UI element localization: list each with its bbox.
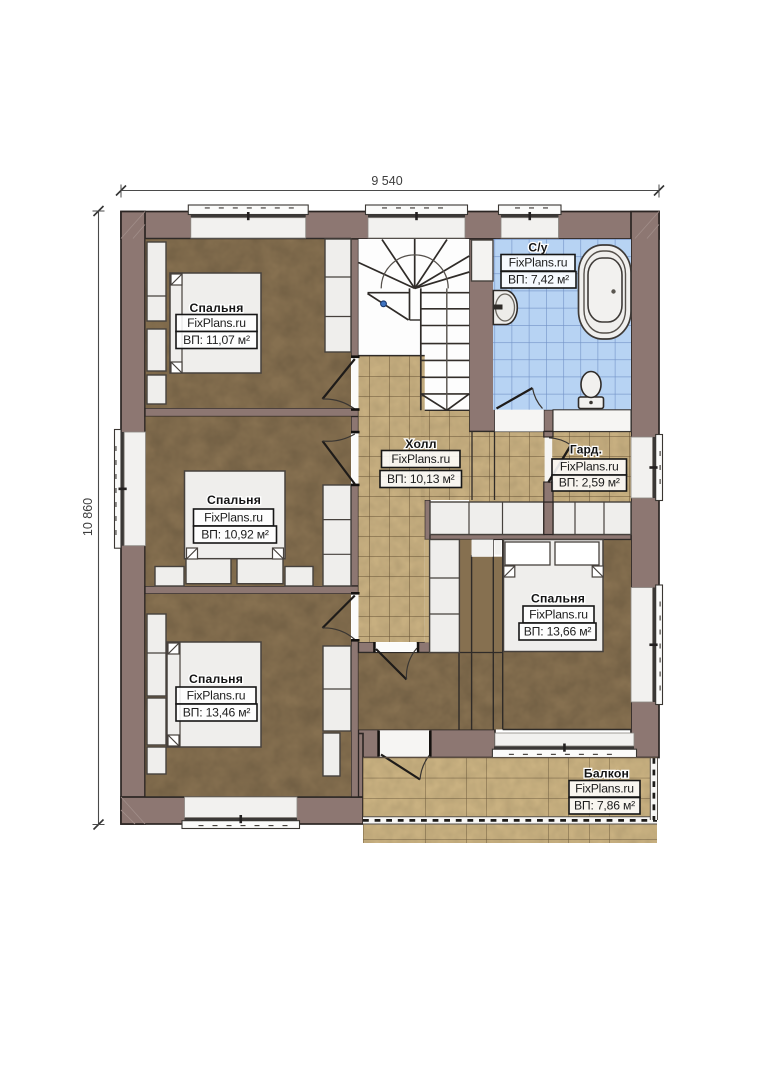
svg-text:Гард.: Гард.: [570, 443, 602, 457]
svg-text:ВП: 13,46 м²: ВП: 13,46 м²: [183, 705, 251, 719]
svg-text:Спальня: Спальня: [189, 672, 243, 686]
svg-text:С/у: С/у: [528, 241, 547, 255]
svg-text:ВП: 13,66 м²: ВП: 13,66 м²: [524, 624, 592, 638]
svg-text:FixPlans.ru: FixPlans.ru: [529, 607, 588, 621]
svg-text:ВП: 11,07 м²: ВП: 11,07 м²: [183, 333, 250, 347]
svg-text:Спальня: Спальня: [207, 493, 261, 507]
svg-text:Холл: Холл: [405, 437, 436, 451]
svg-text:FixPlans.ru: FixPlans.ru: [187, 316, 246, 330]
svg-text:ВП: 10,13 м²: ВП: 10,13 м²: [387, 472, 455, 486]
svg-text:ВП: 10,92 м²: ВП: 10,92 м²: [201, 527, 269, 541]
svg-text:ВП: 7,42 м²: ВП: 7,42 м²: [508, 272, 569, 286]
svg-text:FixPlans.ru: FixPlans.ru: [204, 510, 263, 524]
svg-text:FixPlans.ru: FixPlans.ru: [509, 255, 568, 269]
svg-text:FixPlans.ru: FixPlans.ru: [391, 452, 450, 466]
svg-text:FixPlans.ru: FixPlans.ru: [575, 781, 634, 795]
svg-text:Спальня: Спальня: [531, 592, 585, 606]
svg-text:ВП: 2,59 м²: ВП: 2,59 м²: [559, 475, 620, 489]
svg-text:Спальня: Спальня: [189, 301, 243, 315]
svg-text:Балкон: Балкон: [584, 767, 629, 781]
svg-text:9 540: 9 540: [371, 174, 402, 188]
svg-text:FixPlans.ru: FixPlans.ru: [187, 688, 246, 702]
svg-text:FixPlans.ru: FixPlans.ru: [560, 459, 619, 473]
svg-text:10 860: 10 860: [81, 498, 95, 536]
svg-text:ВП: 7,86 м²: ВП: 7,86 м²: [574, 798, 635, 812]
